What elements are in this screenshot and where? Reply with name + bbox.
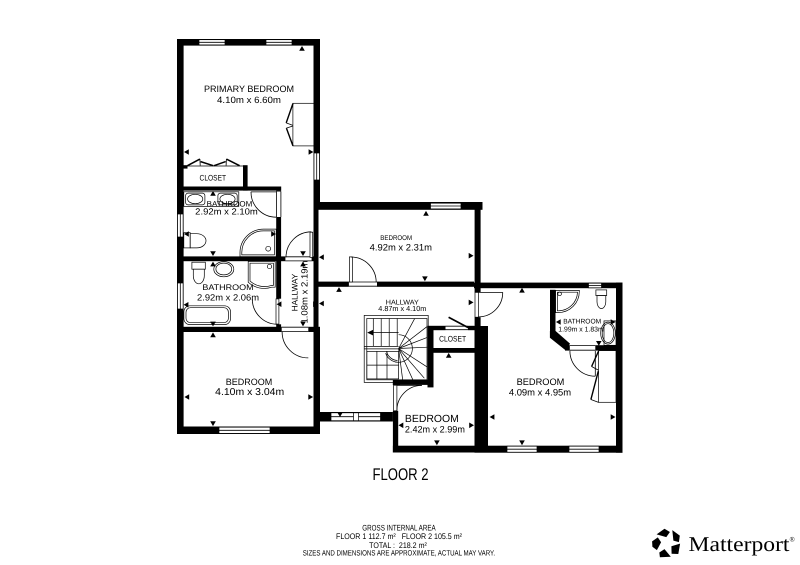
svg-text:CLOSET: CLOSET <box>200 173 227 182</box>
svg-text:Matterport: Matterport <box>689 532 790 556</box>
svg-text:FLOOR 1 112.7 m² FLOOR 2 105: FLOOR 1 112.7 m² FLOOR 2 105.5 m² <box>336 532 462 541</box>
svg-text:4.87m x 4.10m: 4.87m x 4.10m <box>378 304 426 313</box>
svg-text:4.09m x 4.95m: 4.09m x 4.95m <box>509 386 571 397</box>
svg-text:2.42m x 2.99m: 2.42m x 2.99m <box>405 423 465 434</box>
svg-text:4.10m x 3.04m: 4.10m x 3.04m <box>215 387 284 398</box>
svg-text:2.92m x 2.06m: 2.92m x 2.06m <box>197 292 259 302</box>
svg-text:4.10m x 6.60m: 4.10m x 6.60m <box>217 95 281 105</box>
svg-text:2.92m x 2.10m: 2.92m x 2.10m <box>195 207 258 217</box>
svg-text:1.08m x 2.19m: 1.08m x 2.19m <box>300 261 310 324</box>
svg-text:®: ® <box>790 536 796 544</box>
svg-text:4.92m x 2.31m: 4.92m x 2.31m <box>370 241 432 252</box>
svg-text:GROSS INTERNAL AREA: GROSS INTERNAL AREA <box>362 523 436 532</box>
svg-text:FLOOR 2: FLOOR 2 <box>373 465 429 484</box>
svg-text:PRIMARY BEDROOM: PRIMARY BEDROOM <box>204 84 294 94</box>
svg-text:HALLWAY: HALLWAY <box>290 273 299 311</box>
svg-text:BATHROOM: BATHROOM <box>563 319 601 326</box>
svg-text:1.99m x 1.83m: 1.99m x 1.83m <box>558 327 604 334</box>
svg-text:CLOSET: CLOSET <box>439 334 466 343</box>
svg-text:BEDROOM: BEDROOM <box>226 377 273 387</box>
svg-text:SIZES AND DIMENSIONS ARE APPRO: SIZES AND DIMENSIONS ARE APPROXIMATE, AC… <box>303 549 495 558</box>
svg-text:BATHROOM: BATHROOM <box>202 283 254 292</box>
